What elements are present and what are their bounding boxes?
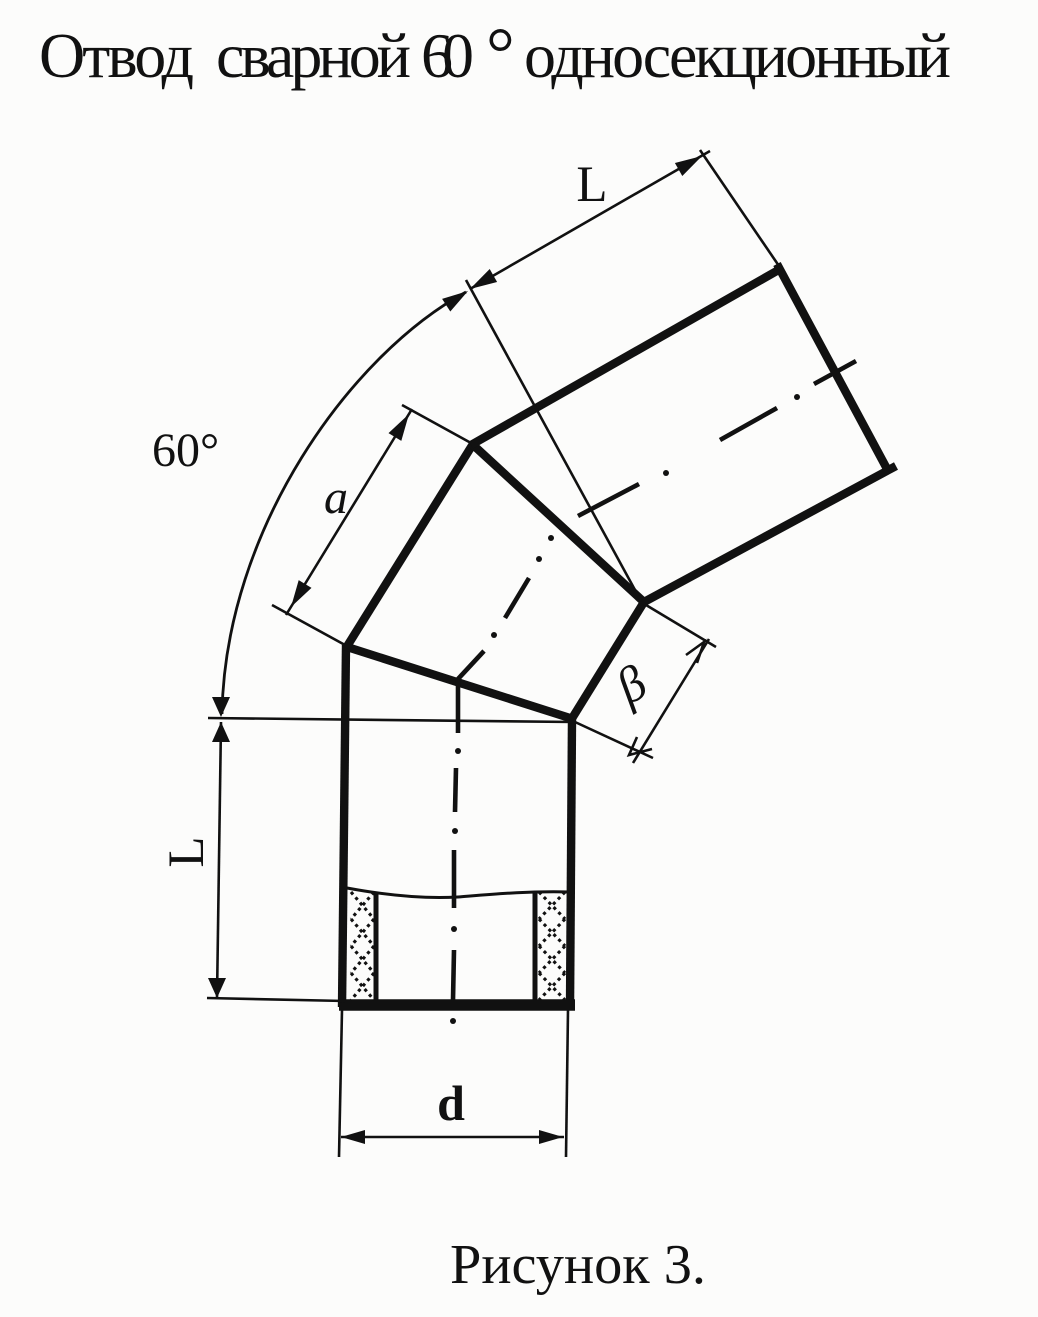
svg-text:Рисунок 3.: Рисунок 3. <box>450 1234 706 1296</box>
svg-text:L: L <box>576 157 607 213</box>
svg-text:L: L <box>159 836 215 867</box>
svg-text:a: a <box>324 471 348 524</box>
svg-text:Отводсварной60°односекционный: Отводсварной60°односекционный <box>39 13 951 93</box>
svg-text:60°: 60° <box>152 424 219 477</box>
svg-text:d: d <box>437 1075 465 1131</box>
svg-text:β: β <box>605 654 656 715</box>
